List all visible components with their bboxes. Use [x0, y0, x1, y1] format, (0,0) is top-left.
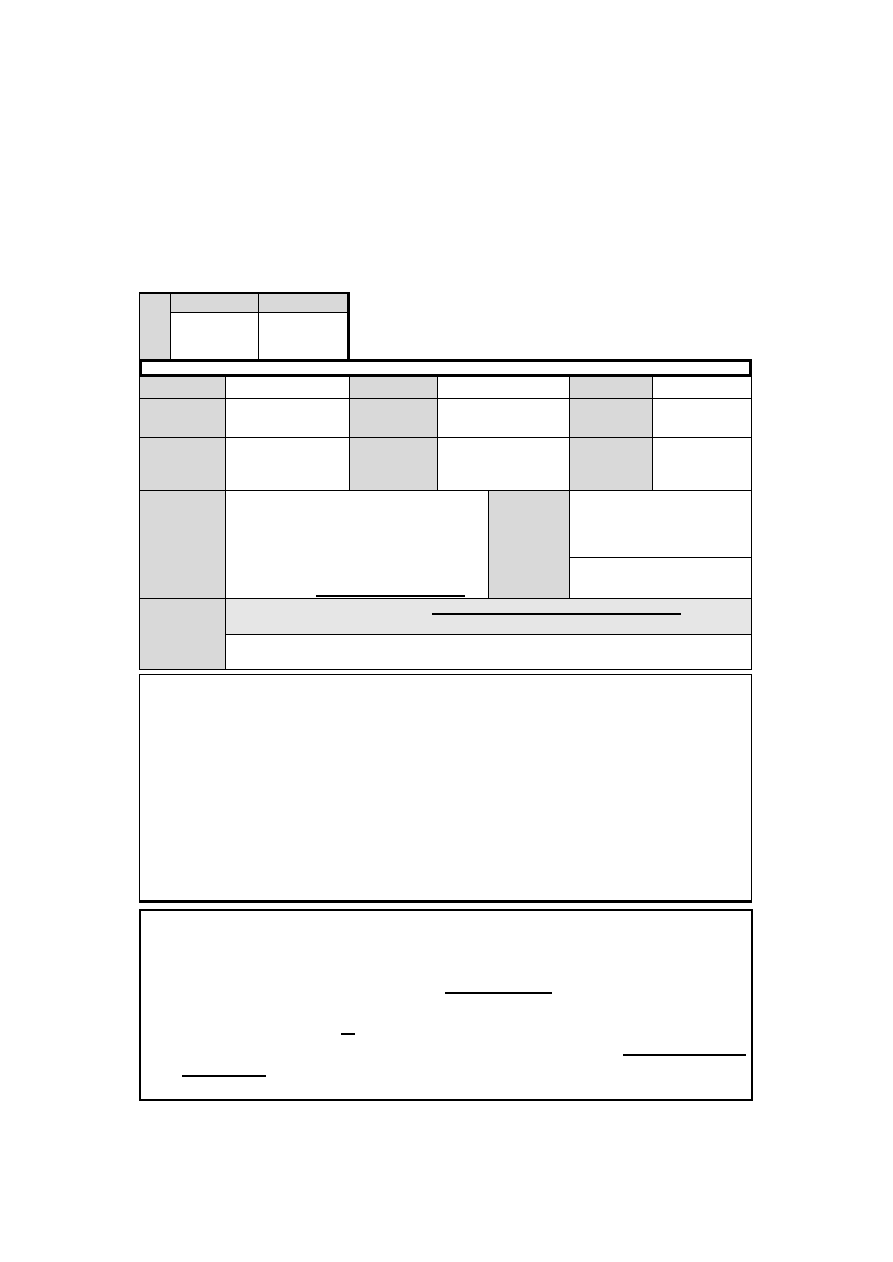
fill-in-blank-row4[interactable]	[316, 595, 465, 597]
details-row2-value3[interactable]	[652, 398, 752, 438]
details-row3-label2	[349, 437, 438, 491]
header-table-col-a-header	[170, 292, 259, 313]
details-row2-label1	[139, 398, 226, 438]
title-bar	[139, 359, 752, 377]
details-row3-value3[interactable]	[652, 437, 752, 491]
details-row4-main-value[interactable]	[225, 490, 489, 599]
document-page	[0, 0, 893, 1262]
details-row4-right-bottom-value[interactable]	[569, 557, 752, 599]
header-table-col-a-value[interactable]	[170, 312, 259, 360]
details-row5-label	[139, 598, 226, 670]
details-row2-label2	[349, 398, 438, 438]
details-row1-label3	[569, 376, 653, 399]
details-row4-right-top-value[interactable]	[569, 490, 752, 558]
header-table-col-b-header	[258, 292, 350, 313]
fill-in-blank-row5[interactable]	[432, 613, 681, 615]
details-row2-value2[interactable]	[437, 398, 570, 438]
header-table-stub-cell	[139, 292, 171, 360]
details-row4-label	[139, 490, 226, 599]
details-row1-value3[interactable]	[652, 376, 752, 399]
fill-in-blank-4[interactable]	[182, 1075, 266, 1077]
details-row3-value1[interactable]	[225, 437, 350, 491]
details-row1-value1[interactable]	[225, 376, 350, 399]
details-row5-bottom-value[interactable]	[225, 634, 752, 670]
details-row2-value1[interactable]	[225, 398, 350, 438]
notes-box[interactable]	[139, 674, 752, 903]
details-row4-mid-label	[488, 490, 570, 599]
details-row2-label3	[569, 398, 653, 438]
details-row3-label3	[569, 437, 653, 491]
details-row5-band-value[interactable]	[225, 598, 752, 636]
details-row1-label1	[139, 376, 226, 399]
details-row3-label1	[139, 437, 226, 491]
signature-box[interactable]	[139, 909, 753, 1101]
details-row3-value2[interactable]	[437, 437, 570, 491]
details-row1-label2	[349, 376, 438, 399]
details-row1-value2[interactable]	[437, 376, 570, 399]
fill-in-blank-1[interactable]	[445, 992, 552, 994]
fill-in-blank-2[interactable]	[341, 1033, 355, 1035]
header-table-col-b-value[interactable]	[258, 312, 350, 360]
fill-in-blank-3[interactable]	[623, 1054, 746, 1056]
